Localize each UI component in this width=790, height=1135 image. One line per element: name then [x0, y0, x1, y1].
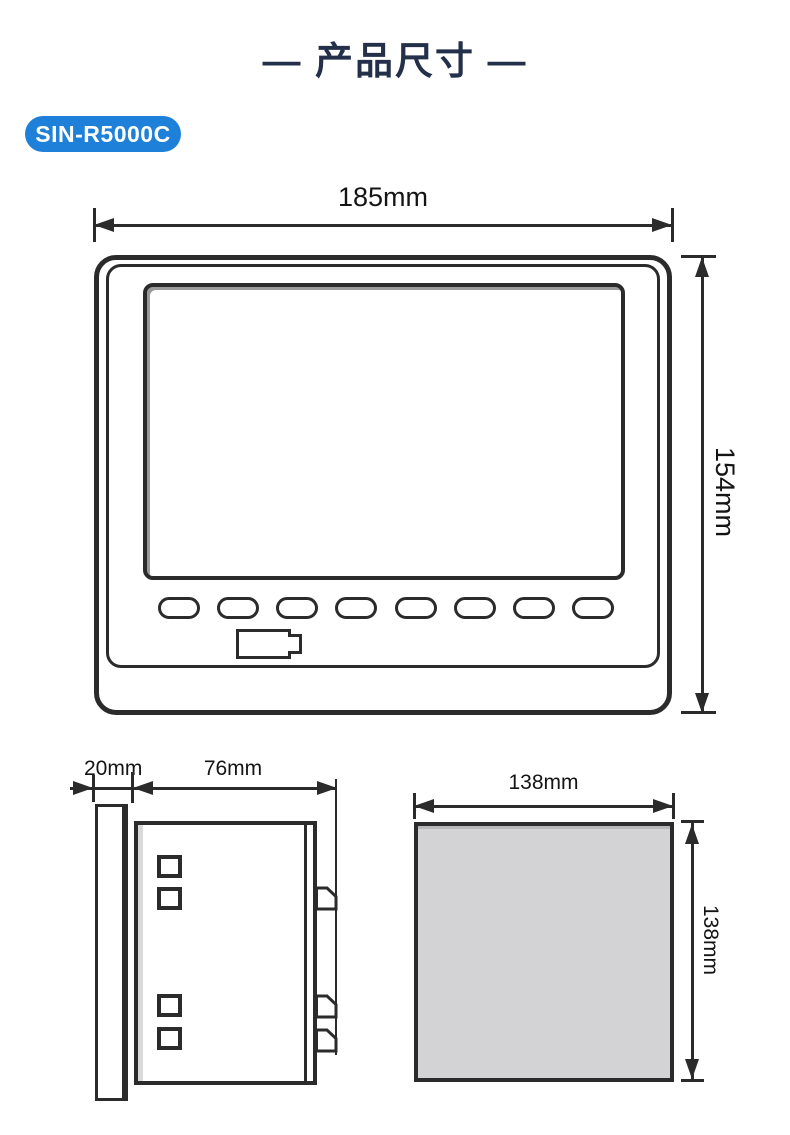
cutout-width-arrow-left-icon: [414, 799, 434, 813]
cutout-width-arrow-right-icon: [653, 799, 673, 813]
cutout-width-extension-right: [672, 793, 675, 819]
cutout-height-arrow-up-icon: [685, 824, 699, 844]
side-vent-square: [157, 855, 182, 878]
mounting-clip-icon: [315, 886, 338, 911]
panel-button: [572, 597, 614, 619]
front-width-arrow-left-icon: [94, 218, 114, 232]
side-vent-square: [157, 1027, 182, 1050]
front-width-extension-left: [93, 208, 96, 242]
cutout-height-extension-bottom: [681, 1079, 704, 1082]
cutout-height-extension-top: [681, 820, 704, 823]
side-body-arrow-left-icon: [133, 781, 153, 795]
model-badge: SIN-R5000C: [25, 116, 181, 152]
front-width-extension-right: [671, 208, 674, 242]
front-screen: [143, 283, 625, 580]
panel-button: [335, 597, 377, 619]
panel-button: [158, 597, 200, 619]
side-depth-dimension-line: [70, 787, 337, 790]
cutout-height-dimension-line: [691, 823, 694, 1080]
model-badge-label: SIN-R5000C: [35, 121, 170, 148]
front-width-dimension-label: 185mm: [94, 182, 672, 213]
front-button-row: [158, 597, 614, 619]
side-extension-mid: [131, 772, 134, 803]
side-vent-square: [157, 994, 182, 1017]
panel-button: [276, 597, 318, 619]
front-width-dimension-line: [94, 224, 672, 227]
mounting-clip-icon: [315, 1028, 338, 1053]
cutout-width-dimension-label: 138mm: [466, 771, 621, 795]
front-height-dimension-label: 154mm: [709, 447, 740, 537]
product-dimensions-page: — 产品尺寸 — SIN-R5000C 185mm: [0, 0, 790, 1135]
panel-cutout-square: [414, 822, 674, 1082]
usb-port: [236, 629, 291, 659]
panel-button: [217, 597, 259, 619]
panel-button: [395, 597, 437, 619]
panel-button: [513, 597, 555, 619]
side-body-arrow-right-icon: [317, 781, 337, 795]
side-body-inner-line: [304, 825, 307, 1081]
cutout-height-dimension-label: 138mm: [698, 905, 722, 975]
side-bezel-inner-line: [122, 807, 125, 1098]
side-body-depth-label: 76mm: [178, 757, 288, 781]
side-flange-arrow-icon: [73, 781, 93, 795]
cutout-width-extension-left: [413, 793, 416, 819]
front-height-arrow-up-icon: [695, 257, 709, 277]
front-height-arrow-down-icon: [695, 693, 709, 713]
front-width-arrow-right-icon: [652, 218, 672, 232]
cutout-width-dimension-line: [414, 805, 673, 808]
side-vent-square: [157, 887, 182, 910]
cutout-height-arrow-down-icon: [685, 1059, 699, 1079]
page-title: — 产品尺寸 —: [0, 30, 790, 85]
front-height-dimension-line: [701, 257, 704, 713]
panel-button: [454, 597, 496, 619]
mounting-clip-icon: [315, 994, 338, 1019]
side-extension-front: [92, 775, 95, 802]
usb-port-tab: [288, 634, 302, 654]
